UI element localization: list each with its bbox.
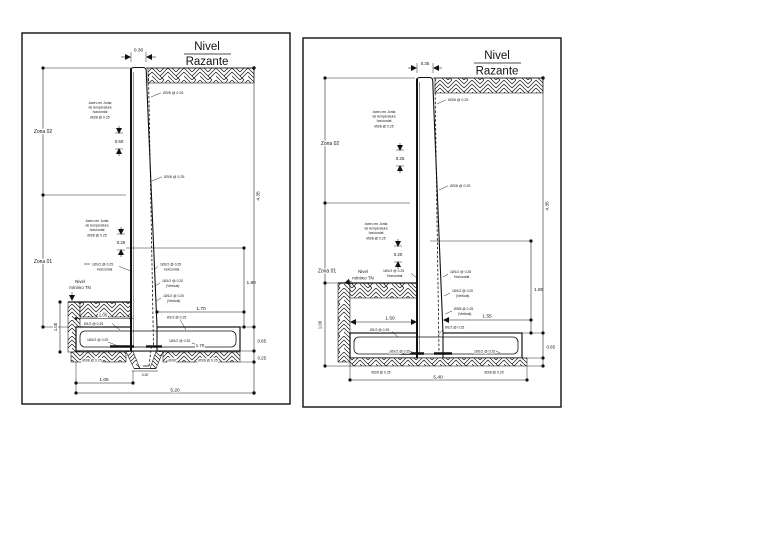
callout: 1Ø1/2 @ 0.25 <box>383 269 404 273</box>
callout: Ø3/8 @ 0.25 <box>198 359 217 363</box>
callout: Ø3/8 @ 0.25 <box>450 184 470 188</box>
callout: 1Ø1/2 @ 0.20 <box>162 279 183 283</box>
callout: Horizontal <box>454 275 470 279</box>
note-line: de temperatura <box>89 105 112 109</box>
right-backfill-ground-hatch <box>435 78 543 93</box>
callout: Ø3/8 @ 0.25 <box>448 98 468 102</box>
dim-left-footing-rebar: 1.70 <box>196 343 205 348</box>
callout: Ø1/2 @ 0.25 <box>370 328 389 332</box>
callout: 1Ø1/2 @ 0.20 <box>163 294 184 298</box>
callout: Ø3/8 <box>168 359 175 363</box>
left-nivel-minimo-1: Nivel <box>75 279 85 284</box>
right-zona-01-label: Zona 01 <box>318 269 337 275</box>
callout: 1Ø1/2 @ 0.25 <box>87 338 108 342</box>
callout: Ø3/8 @ 0.25 <box>82 359 101 363</box>
dim-left-heel-bottom: 1.05 <box>99 377 109 383</box>
dim-right-lower-spacing: 0.20 <box>394 252 403 257</box>
callout: 1Ø1/2 @ 0.25 <box>389 350 410 354</box>
callout: 1Ø1/2 @ 0.25 <box>160 263 181 267</box>
callout: (Vertical) <box>167 299 180 303</box>
left-wall-section: Nivel Razante <box>22 33 290 404</box>
callout: (Vertical) <box>458 312 471 316</box>
dim-right-toe: 1.55 <box>482 314 492 320</box>
right-nivel-minimo-1: Nivel <box>358 269 368 274</box>
dim-right-upper-spacing: 0.25 <box>396 156 405 161</box>
dim-right-crown-width: 0.35 <box>421 61 430 66</box>
dim-left-heel-top: 1.05 <box>99 313 108 318</box>
note-line: de temperatura <box>86 223 109 227</box>
left-title-bottom: Razante <box>186 56 229 68</box>
callout: 1Ø1/2 @ 0.25 <box>450 270 471 274</box>
callout: (Vertical) <box>166 284 179 288</box>
drawing-sheet: Nivel Razante <box>0 0 768 543</box>
note-line: Acero en Junta <box>373 110 396 114</box>
dim-right-footing-thickness: 0.65 <box>547 345 556 350</box>
callout: Ø3/8 @ 0.25 <box>164 175 184 179</box>
dim-right-base-width: 5.40 <box>433 375 443 381</box>
note-line: horizontal <box>93 110 108 114</box>
note-line: Ø3/8 @ 0.25 <box>90 115 109 119</box>
right-nivel-minimo-2: mínimo TN <box>352 276 373 281</box>
dim-right-wall-height: 4.35 <box>545 201 551 211</box>
dim-left-upper-spacing: 0.50 <box>115 139 124 144</box>
dim-right-stem-lower: 1.80 <box>534 287 544 293</box>
note-line: Acero en Junta <box>86 219 109 223</box>
callout: Ø3/8 @ 0.25 <box>163 91 183 95</box>
callout: 1Ø1/2 @ 0.25 <box>169 339 190 343</box>
note-line: Acero en Junta <box>365 222 388 226</box>
dim-left-lower-spacing: 0.25 <box>117 240 126 245</box>
callout: Horizontal <box>97 268 113 272</box>
note-line: Ø3/8 @ 0.25 <box>374 124 393 128</box>
callout: Ø1/2 @ 0.25 <box>445 326 464 330</box>
dim-right-depth: 1.00 <box>318 320 323 329</box>
dim-left-toe: 1.70 <box>196 306 206 312</box>
callout: Ø3/8 @ 0.25 <box>454 307 473 311</box>
callout: (Vertical) <box>456 294 469 298</box>
left-backfill-ground-hatch <box>148 68 254 83</box>
dim-left-footing-thickness: 0.65 <box>258 339 267 344</box>
left-title-top: Nivel <box>194 41 220 53</box>
dim-right-heel: 1.50 <box>385 316 395 322</box>
note-line: de temperatura <box>373 114 396 118</box>
dim-left-base-width: 5.20 <box>170 388 180 394</box>
callout: Horizontal <box>164 268 180 272</box>
dim-left-key-width: 0.30 <box>142 373 149 377</box>
callout: Ø1/2 @ 0.25 <box>167 316 186 320</box>
dim-left-depth: 1.00 <box>53 322 58 331</box>
left-nivel-minimo-2: mínimo TN <box>69 285 90 290</box>
callout: Ø1/2 @ 0.25 <box>84 322 103 326</box>
right-subgrade-hatch <box>350 358 527 366</box>
dim-left-subgrade: 0.25 <box>258 356 267 361</box>
right-wall-section: Nivel Razante <box>303 38 561 407</box>
note-line: horizontal <box>377 119 392 123</box>
note-line: horizontal <box>90 228 105 232</box>
callout: Ø3/8 @ 0.25 <box>484 371 503 375</box>
dim-left-crown-width: 0.30 <box>134 48 144 54</box>
callout: 1Ø1/2 @ 0.20 <box>452 289 473 293</box>
left-zona-02-label: Zona 02 <box>34 129 53 135</box>
dim-left-stem-lower: 1.80 <box>247 280 257 286</box>
note-line: Ø3/8 @ 0.25 <box>87 233 106 237</box>
left-zona-01-label: Zona 01 <box>34 259 53 265</box>
callout: Ø3/8 @ 0.25 <box>371 371 390 375</box>
note-line: Acero en Junta <box>89 101 112 105</box>
dim-left-wall-height: 4.35 <box>256 191 262 201</box>
right-title-bottom: Razante <box>476 66 519 78</box>
retaining-wall-drawings: Nivel Razante <box>0 0 768 543</box>
note-line: de temperatura <box>365 226 388 230</box>
callout: 1Ø1/2 @ 0.25 <box>474 350 495 354</box>
note-line: Ø3/8 @ 0.25 <box>366 236 385 240</box>
callout: 1Ø1/2 @ 0.25 <box>92 263 113 267</box>
note-line: horizontal <box>369 231 384 235</box>
callout: Horizontal <box>387 274 403 278</box>
right-zona-02-label: Zona 02 <box>321 141 340 147</box>
right-title-top: Nivel <box>484 50 510 62</box>
